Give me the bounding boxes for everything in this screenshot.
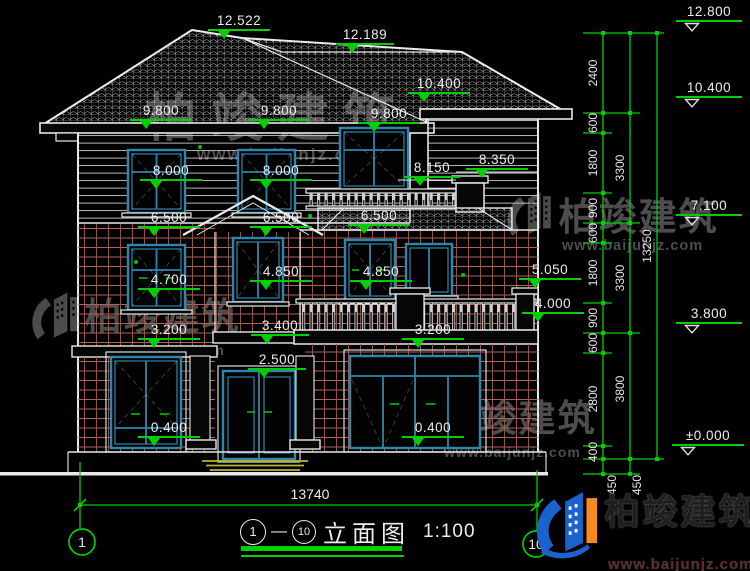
level-text: 8.000 — [250, 163, 312, 178]
level-text: 0.400 — [138, 420, 200, 435]
dim-text: 600 — [585, 211, 601, 255]
level-text: 6.500 — [250, 210, 312, 225]
title-axis-separator: — — [271, 523, 287, 541]
level-text: 4.700 — [138, 272, 200, 287]
level-label-right-10400: 10.400 — [676, 80, 742, 108]
level-triangle-icon — [684, 98, 700, 108]
level-triangle-icon — [258, 370, 270, 378]
terrace-balustrade — [306, 189, 458, 209]
level-triangle-icon — [148, 290, 160, 298]
level-triangle-icon — [261, 336, 273, 344]
level-text: 9.800 — [248, 103, 310, 118]
dim-text: 1800 — [585, 251, 601, 295]
title-underline-thick — [241, 546, 402, 551]
level-text: 4.000 — [522, 296, 584, 311]
level-triangle-icon — [412, 340, 424, 348]
level-triangle-icon — [258, 121, 270, 129]
level-line — [336, 43, 394, 45]
level-label-right-0000: ±0.000 — [672, 428, 744, 456]
level-text: 3.200 — [138, 322, 200, 337]
level-label-8350: 8.350 — [466, 152, 528, 178]
level-label-4850-a: 4.850 — [250, 264, 312, 290]
dim-text: 600 — [585, 321, 601, 365]
brand-name-text: 柏竣建筑 — [604, 493, 750, 532]
level-label-8000-b: 8.000 — [250, 163, 312, 189]
eave-fascia-right — [420, 109, 572, 119]
title-axis-end-bubble: 10 — [292, 520, 316, 544]
title-axis-start-bubble: 1 — [240, 519, 266, 545]
level-triangle-icon — [260, 181, 272, 189]
level-triangle-icon — [412, 438, 424, 446]
level-triangle-icon — [150, 181, 162, 189]
dim-text: 600 — [585, 101, 601, 145]
level-triangle-icon — [684, 216, 700, 226]
title-underline-thin — [241, 555, 404, 557]
level-text: 10.400 — [676, 80, 742, 95]
building-logo-icon — [528, 484, 600, 562]
level-triangle-icon — [218, 31, 230, 39]
level-line — [251, 334, 309, 336]
level-label-3200-b: 3.200 — [402, 322, 464, 348]
level-triangle-icon — [260, 282, 272, 290]
dim-text: 400 — [585, 430, 601, 474]
level-label-0400-a: 0.400 — [138, 420, 200, 446]
level-label-8150: 8.150 — [404, 160, 460, 186]
level-triangle-icon — [684, 22, 700, 32]
level-text: 6.500 — [348, 208, 410, 223]
dim-text: 3800 — [612, 367, 628, 411]
overall-width-dim: 13740 — [270, 486, 350, 502]
level-triangle-icon — [532, 314, 544, 322]
level-triangle-icon — [140, 121, 152, 129]
level-text: 12.522 — [208, 13, 270, 28]
level-label-8000-a: 8.000 — [140, 163, 202, 189]
level-triangle-icon — [346, 45, 358, 53]
level-triangle-icon — [529, 280, 541, 288]
level-text: ±0.000 — [672, 428, 744, 443]
level-text: 7.100 — [676, 198, 742, 213]
level-line — [248, 368, 306, 370]
entry-door — [218, 366, 300, 462]
level-text: 3.400 — [251, 318, 309, 333]
level-label-9800-c: 9.800 — [358, 106, 420, 132]
level-triangle-icon — [148, 340, 160, 348]
dim-text: 3300 — [612, 256, 628, 300]
level-triangle-icon — [418, 94, 430, 102]
level-triangle-icon — [414, 178, 426, 186]
level-triangle-icon — [680, 446, 696, 456]
dim-text: 2400 — [585, 51, 601, 95]
level-triangle-icon — [476, 170, 488, 178]
level-text: 3.200 — [402, 322, 464, 337]
level-text: 4.850 — [350, 264, 412, 279]
level-triangle-icon — [360, 282, 372, 290]
level-label-9800-a: 9.800 — [130, 103, 192, 129]
level-text: 0.400 — [402, 420, 464, 435]
level-text: 4.850 — [250, 264, 312, 279]
level-label-10400-roof: 10.400 — [408, 76, 470, 102]
level-triangle-icon — [684, 324, 700, 334]
level-label-9800-b: 9.800 — [248, 103, 310, 129]
dim-text: 2800 — [585, 377, 601, 421]
level-text: 10.400 — [408, 76, 470, 91]
level-label-3400: 3.400 — [251, 318, 309, 344]
title-scale: 1:100 — [423, 521, 476, 543]
dim-text: 13250 — [639, 222, 655, 270]
level-text: 9.800 — [130, 103, 192, 118]
level-label-right-7100: 7.100 — [676, 198, 742, 226]
level-label-6500-b: 6.500 — [250, 210, 312, 236]
level-label-right-3800: 3.800 — [676, 306, 742, 334]
level-text: 9.800 — [358, 106, 420, 121]
level-label-4850-b: 4.850 — [350, 264, 412, 290]
level-text: 8.350 — [466, 152, 528, 167]
brand-url-text: www.baijunjz.com — [608, 556, 750, 571]
level-text: 12.189 — [336, 27, 394, 42]
level-label-12189: 12.189 — [336, 27, 394, 53]
level-triangle-icon — [260, 228, 272, 236]
level-triangle-icon — [148, 228, 160, 236]
level-triangle-icon — [358, 226, 370, 234]
level-label-12522: 12.522 — [208, 13, 270, 39]
dim-text: 1800 — [585, 141, 601, 185]
level-label-6500-c: 6.500 — [348, 208, 410, 234]
level-triangle-icon — [148, 438, 160, 446]
level-label-5050: 5.050 — [519, 262, 581, 288]
level-text: 8.150 — [404, 160, 460, 175]
level-label-6500-a: 6.500 — [138, 210, 200, 236]
level-label-right-12800: 12.800 — [676, 4, 742, 32]
title-drawing-name: 立面图 — [323, 514, 410, 549]
axis-bubble-left: 1 — [69, 529, 95, 555]
window — [340, 128, 408, 190]
level-text: 6.500 — [138, 210, 200, 225]
drawing-title: 1 — 10 立面图 1:100 — [240, 514, 476, 549]
level-label-3200-a: 3.200 — [138, 322, 200, 348]
level-triangle-icon — [368, 124, 380, 132]
ground-line — [0, 472, 548, 476]
level-text: 2.500 — [248, 352, 306, 367]
dim-text: 3300 — [612, 146, 628, 190]
level-text: 8.000 — [140, 163, 202, 178]
level-label-4700: 4.700 — [138, 272, 200, 298]
level-label-4000: 4.000 — [522, 296, 584, 322]
level-line — [404, 176, 460, 178]
brand-logo: 柏竣建筑 www.baijunjz.com — [528, 484, 750, 571]
cad-elevation-canvas: 柏竣建筑 www.baijunjz.com 柏竣建筑 www.baijunjz.… — [0, 0, 750, 571]
level-text: 3.800 — [676, 306, 742, 321]
level-text: 12.800 — [676, 4, 742, 19]
level-label-2500: 2.500 — [248, 352, 306, 378]
level-text: 5.050 — [519, 262, 581, 277]
level-label-0400-b: 0.400 — [402, 420, 464, 446]
